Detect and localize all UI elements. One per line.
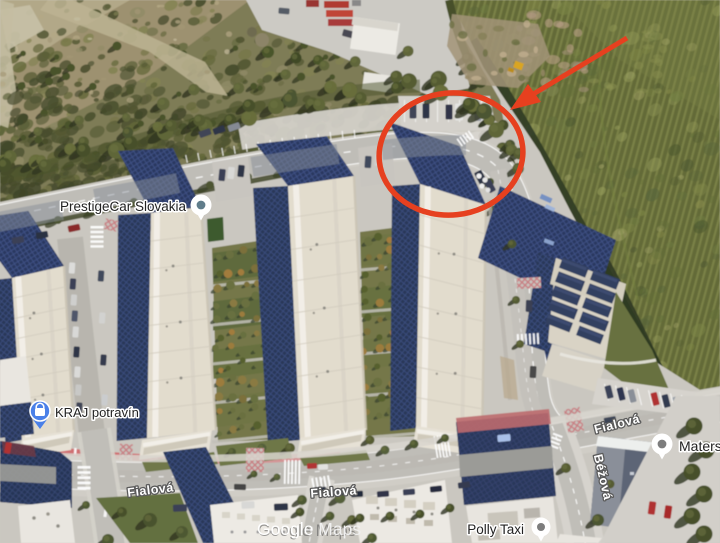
svg-text:Matersk: Matersk	[679, 438, 720, 454]
svg-text:Google Maps: Google Maps	[257, 519, 361, 539]
svg-text:KRAJ potravín: KRAJ potravín	[55, 405, 139, 420]
svg-text:Polly Taxi: Polly Taxi	[467, 522, 524, 537]
svg-text:PrestigeCar Slovakia: PrestigeCar Slovakia	[60, 199, 187, 214]
